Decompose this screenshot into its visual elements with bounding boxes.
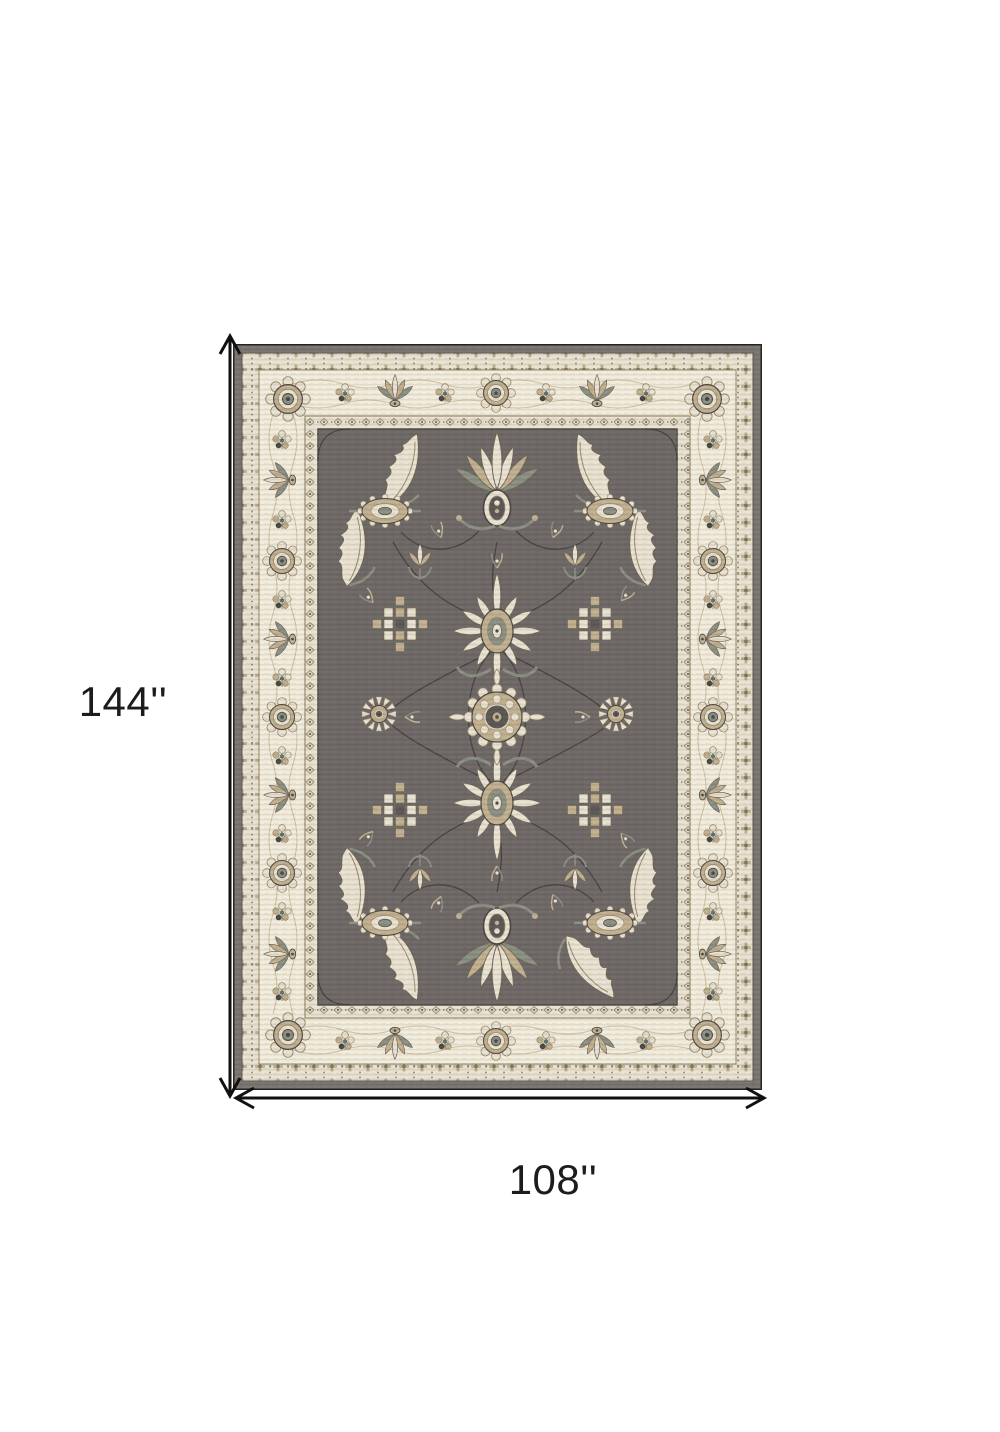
width-dimension-arrow <box>226 1084 774 1112</box>
height-dimension-arrow <box>216 328 244 1104</box>
figure-canvas: 144'' 108'' <box>0 0 1000 1432</box>
rug-image <box>233 344 762 1090</box>
height-label: 144'' <box>53 680 193 724</box>
width-label: 108'' <box>483 1158 623 1202</box>
